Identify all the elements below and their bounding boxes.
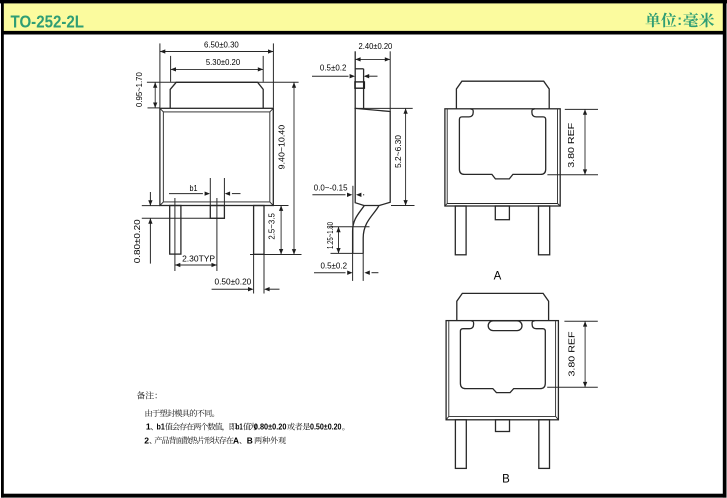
svg-text:b1: b1 <box>190 184 198 193</box>
svg-text:b1: b1 <box>236 422 243 432</box>
svg-text:A: A <box>233 435 239 445</box>
svg-text:1: 1 <box>146 422 151 432</box>
svg-text:0.5±0.2: 0.5±0.2 <box>321 261 348 270</box>
svg-text:0.0~-0.15: 0.0~-0.15 <box>314 184 348 193</box>
svg-text:b1: b1 <box>157 422 166 432</box>
svg-text:6.50±0.30: 6.50±0.30 <box>204 40 239 49</box>
svg-text:0.80±0.20: 0.80±0.20 <box>133 219 142 264</box>
svg-text:2.5~3.5: 2.5~3.5 <box>268 213 277 240</box>
svg-text:A: A <box>494 271 502 283</box>
svg-text:0.80±0.20: 0.80±0.20 <box>254 422 287 432</box>
svg-text::: : <box>677 13 682 29</box>
svg-text:9.40~10.40: 9.40~10.40 <box>278 124 287 169</box>
svg-text:1.25~1.80: 1.25~1.80 <box>326 221 335 249</box>
svg-text:0.50±0.20: 0.50±0.20 <box>215 277 252 286</box>
svg-text:B: B <box>502 474 510 486</box>
svg-text:B: B <box>247 435 253 445</box>
svg-text:0.50±0.20: 0.50±0.20 <box>310 422 342 432</box>
svg-text:3.80 REF: 3.80 REF <box>567 332 576 377</box>
svg-text:5.30±0.20: 5.30±0.20 <box>206 58 241 67</box>
svg-text:3.80 REF: 3.80 REF <box>567 123 576 168</box>
svg-text:5.2~6.30: 5.2~6.30 <box>394 135 403 168</box>
svg-text:0.5±0.2: 0.5±0.2 <box>320 64 347 73</box>
svg-text:TO-252-2L: TO-252-2L <box>11 12 85 32</box>
svg-text:2.30TYP: 2.30TYP <box>182 255 216 264</box>
svg-text:2: 2 <box>144 435 149 445</box>
svg-text:0.95~1.70: 0.95~1.70 <box>135 72 144 107</box>
svg-text:2.40±0.20: 2.40±0.20 <box>359 42 393 51</box>
